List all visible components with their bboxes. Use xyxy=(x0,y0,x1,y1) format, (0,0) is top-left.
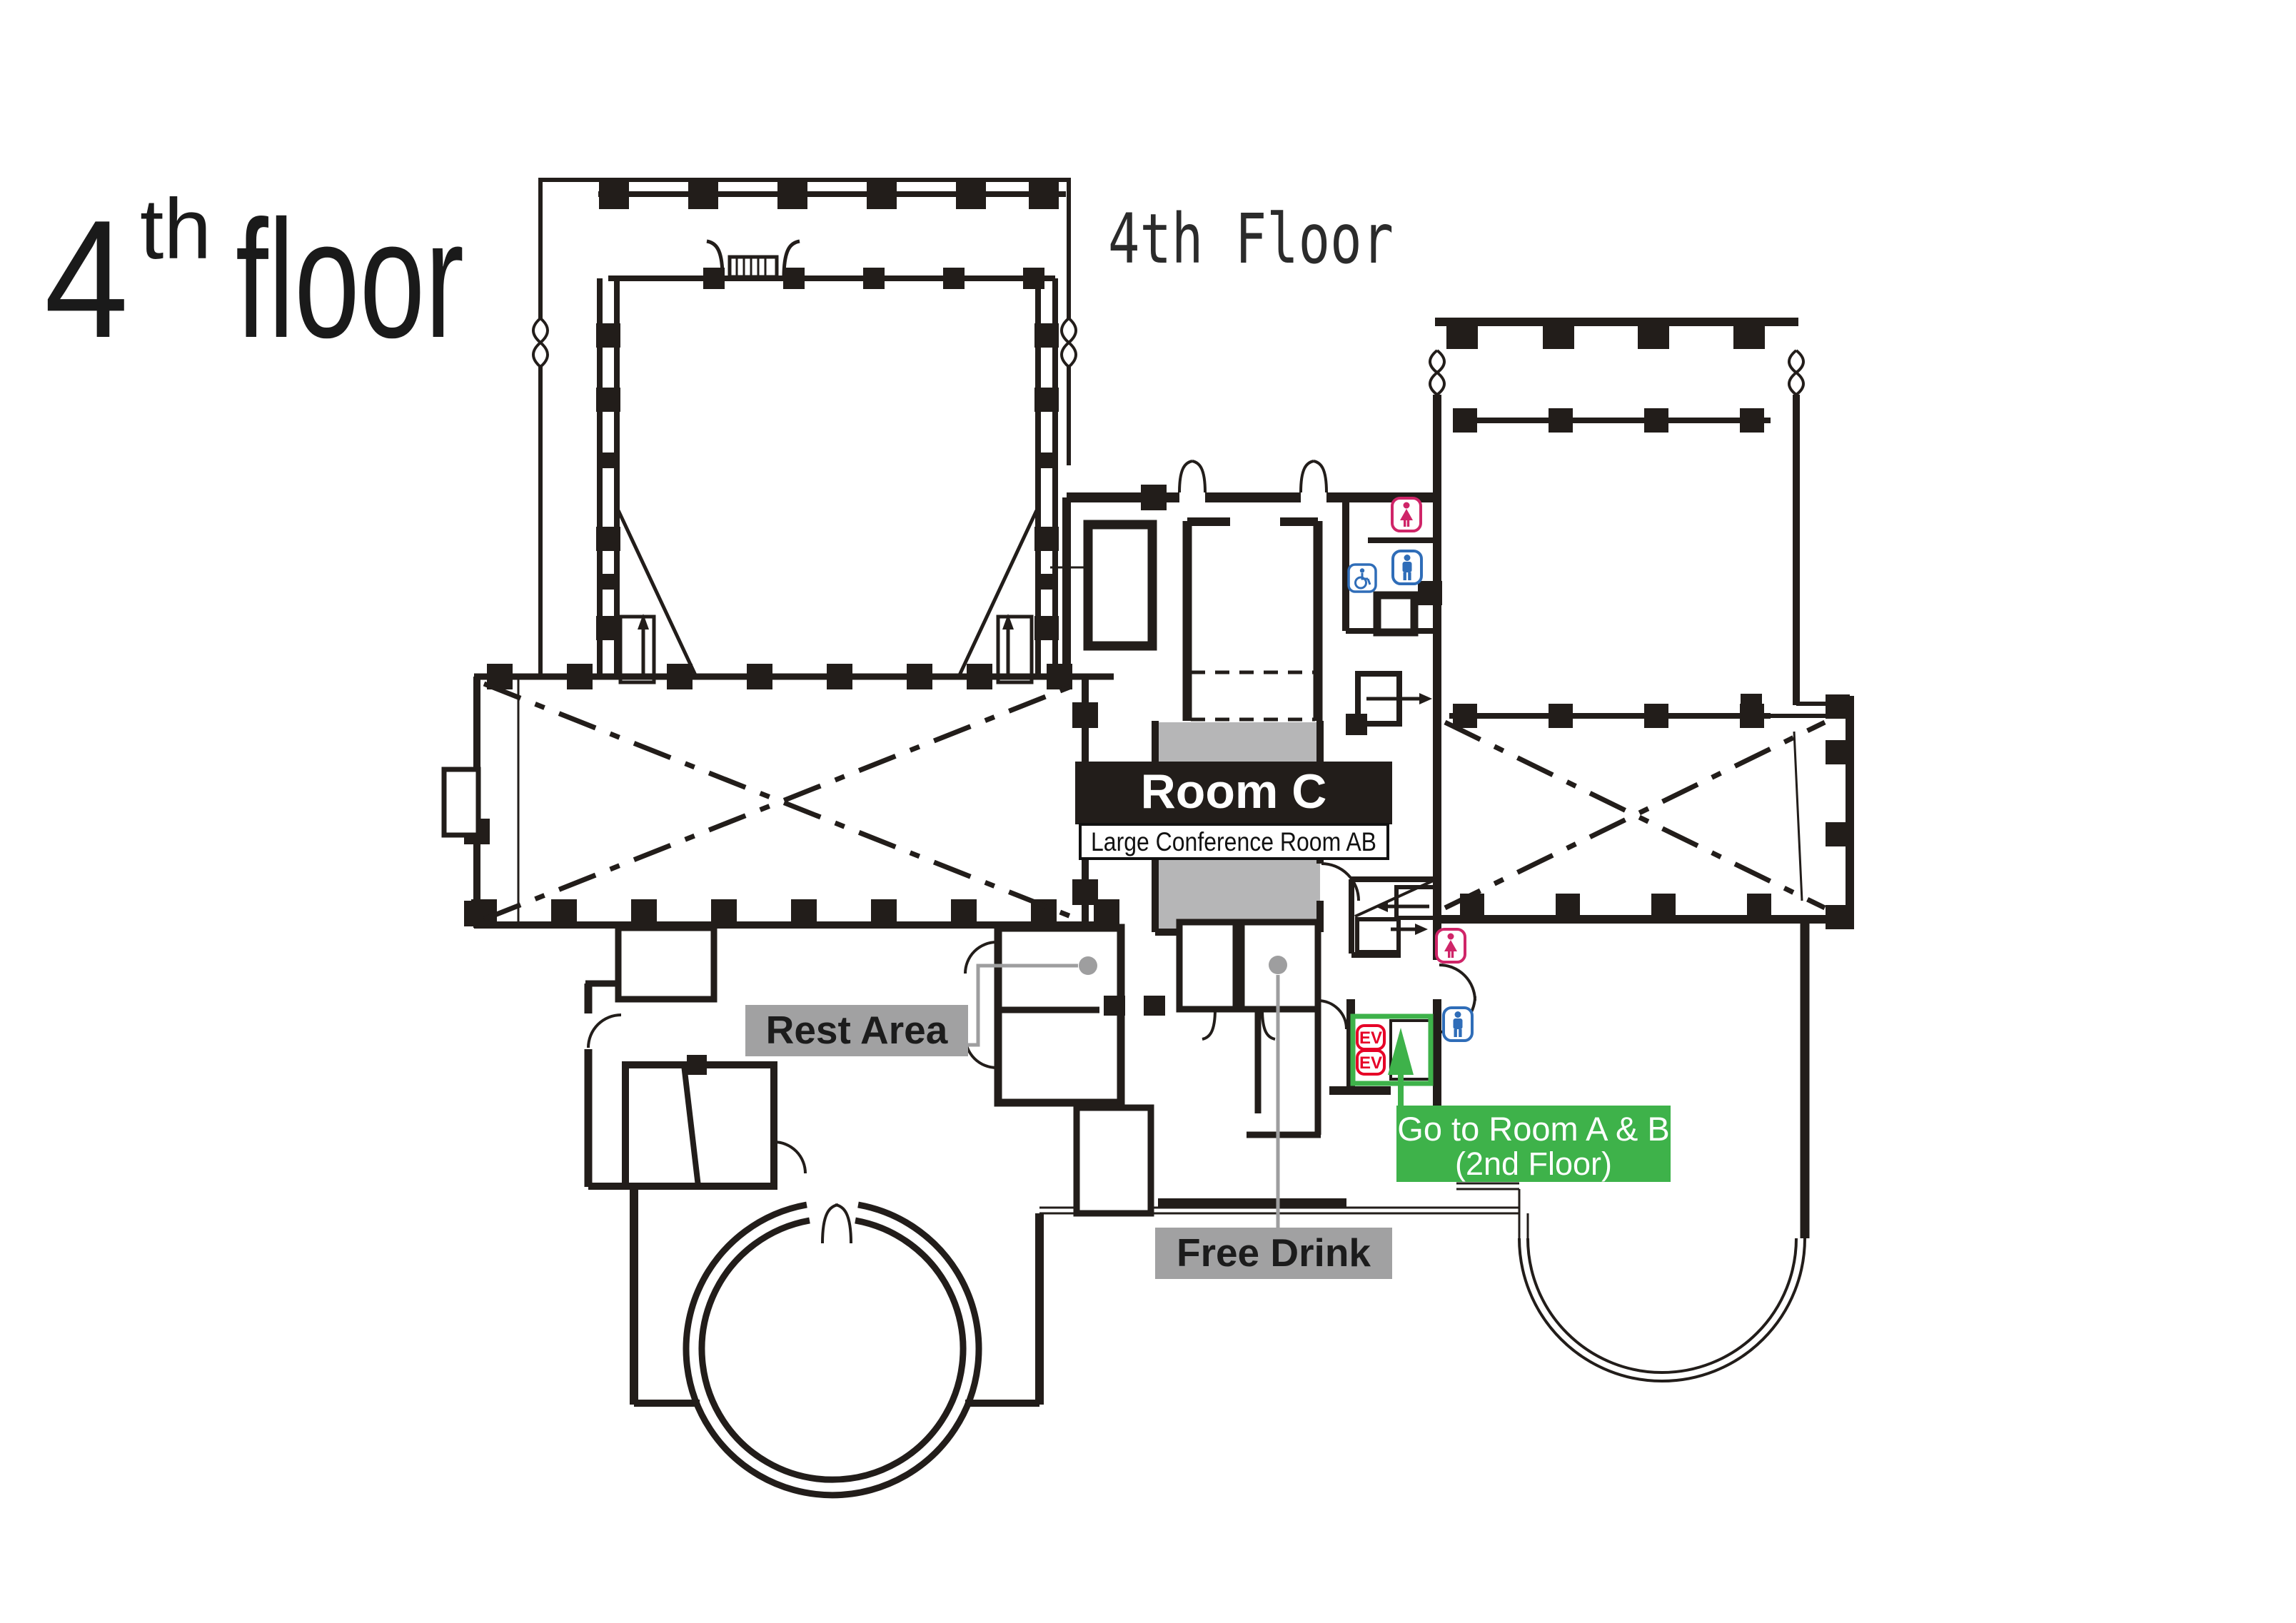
floor-plan-page: EV EV Go to Room A & B (2nd Floor) xyxy=(0,0,2296,1623)
stairs-icon-core xyxy=(1358,674,1432,724)
rest-area-label: Rest Area xyxy=(745,1005,968,1056)
left-bay xyxy=(444,769,478,835)
stairs-icon-upper-left xyxy=(620,614,654,682)
wall-break-icon xyxy=(1430,350,1803,395)
goto-line1: Go to Room A & B xyxy=(1397,1110,1669,1148)
free-drink-label: Free Drink xyxy=(1155,1228,1392,1279)
upper-right-hall xyxy=(1418,318,1850,728)
large-hall-left xyxy=(444,664,1119,928)
womens-restroom-icon-upper xyxy=(1392,498,1421,531)
accessible-restroom-icon xyxy=(1349,565,1376,592)
mens-restroom-icon-lower xyxy=(1444,1008,1472,1041)
hall-cross-diagonals xyxy=(1445,722,1825,908)
goto-line2: (2nd Floor) xyxy=(1455,1146,1612,1182)
goto-label: Go to Room A & B (2nd Floor) xyxy=(1396,1106,1671,1182)
womens-restroom-icon-lower xyxy=(1436,929,1465,962)
free-drink-text: Free Drink xyxy=(1177,1230,1371,1275)
ev-label: EV xyxy=(1359,1028,1382,1048)
hall-cross-diagonals xyxy=(484,684,1078,919)
page-title-word: floor xyxy=(236,185,464,373)
rest-area-text: Rest Area xyxy=(766,1008,948,1052)
floor-plan-svg: EV EV Go to Room A & B (2nd Floor) xyxy=(0,0,2296,1623)
upper-left-hall xyxy=(533,179,1076,678)
room-c-label: Room C xyxy=(1075,762,1392,824)
plan-heading: 4th Floor xyxy=(1108,199,1394,279)
ev-label: EV xyxy=(1359,1053,1382,1073)
stairs-icon-upper-right xyxy=(998,614,1032,682)
ev-icon-2: EV xyxy=(1357,1051,1384,1074)
room-c-subtitle: Large Conference Room AB xyxy=(1080,824,1388,859)
large-hall-right xyxy=(1439,694,1850,929)
page-title-number: 4 xyxy=(44,185,129,373)
page-title: 4 th floor xyxy=(44,181,464,373)
small-room xyxy=(1088,525,1152,646)
room-c-subtitle-text: Large Conference Room AB xyxy=(1091,827,1376,856)
ev-icon-1: EV xyxy=(1357,1026,1384,1049)
escalator-stairs xyxy=(1351,878,1439,955)
page-title-ordinal: th xyxy=(140,181,211,277)
room-c-title: Room C xyxy=(1141,764,1327,819)
round-hall-ring xyxy=(686,1205,979,1495)
mens-restroom-icon-upper xyxy=(1393,551,1421,584)
